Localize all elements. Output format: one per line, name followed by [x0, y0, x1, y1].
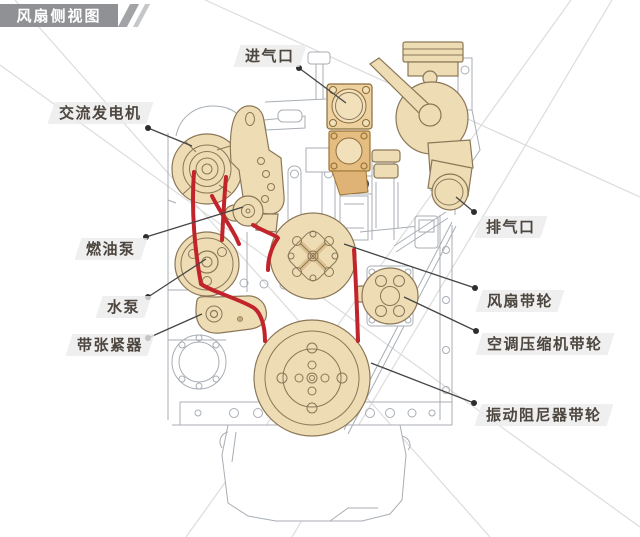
label-fuel-pump: 燃油泵	[86, 240, 136, 258]
ac-compressor-pulley	[356, 266, 418, 326]
engine-diagram	[0, 0, 640, 537]
label-exhaust-port: 排气口	[486, 218, 536, 236]
label-water-pump: 水泵	[107, 298, 140, 316]
fan-pulley	[270, 213, 356, 299]
belt-tensioner	[196, 296, 266, 333]
label-belt-tensioner: 带张紧器	[77, 336, 143, 354]
label-vibration-damper-pulley: 振动阻尼器带轮	[486, 406, 602, 424]
page-title: 风扇侧视图	[16, 5, 101, 26]
label-alternator: 交流发电机	[59, 104, 142, 122]
label-intake-port: 进气口	[245, 47, 295, 65]
label-text: 风扇带轮	[487, 292, 553, 310]
engine-diagram-page: 风扇侧视图 进气口 交流发电机 燃油泵 水泵 带张紧器 排气口 风扇带轮 空调压…	[0, 0, 640, 537]
label-ac-compressor-pulley: 空调压缩机带轮	[487, 335, 603, 353]
label-text: 进气口	[245, 47, 295, 65]
label-text: 燃油泵	[86, 240, 136, 258]
vibration-damper-pulley	[254, 320, 370, 436]
label-text: 交流发电机	[59, 104, 142, 122]
label-text: 排气口	[486, 218, 536, 236]
label-text: 空调压缩机带轮	[487, 335, 603, 353]
label-text: 带张紧器	[77, 336, 143, 354]
turbo-assembly	[370, 42, 473, 210]
title-banner: 风扇侧视图	[0, 4, 118, 27]
label-text: 水泵	[107, 298, 140, 316]
label-text: 振动阻尼器带轮	[486, 406, 602, 424]
label-fan-pulley: 风扇带轮	[487, 292, 553, 310]
